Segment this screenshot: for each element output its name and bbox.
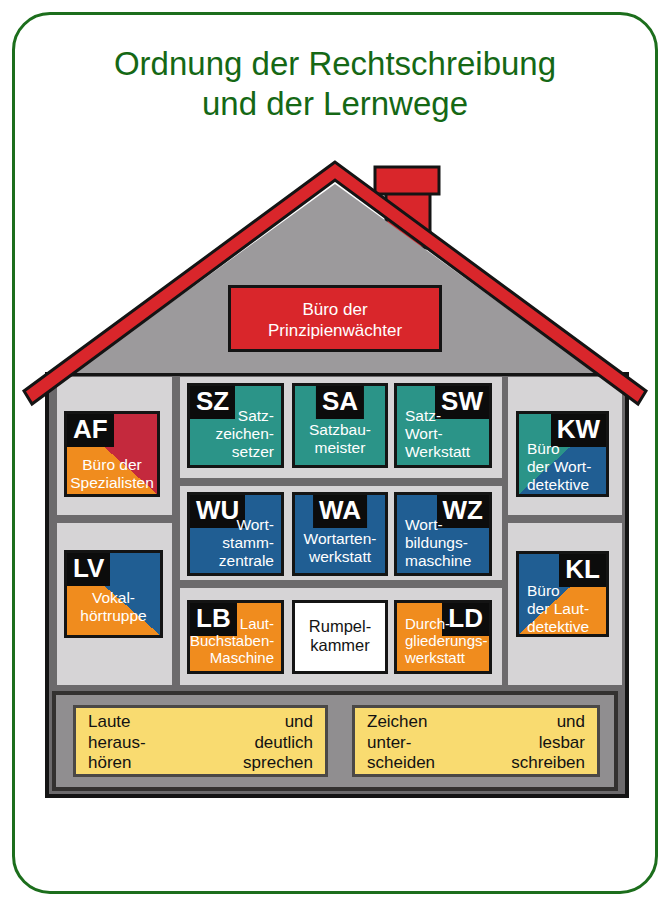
- room-lb: LB Laut- Buchstaben- Maschine: [187, 600, 284, 674]
- room-wz-label: Wort- bildungs- maschine: [397, 516, 489, 570]
- room-lb-label: Laut- Buchstaben- Maschine: [190, 616, 281, 667]
- room-lv-code-badge: LV: [67, 553, 110, 586]
- room-lv-label: Vokal- hörtruppe: [67, 589, 160, 625]
- room-sw-label: Satz- Wort- Werkstatt: [397, 407, 489, 461]
- room-sz-label: Satz- zeichen- setzer: [190, 407, 281, 461]
- room-kl: KL Büro der Laut- detektive: [516, 551, 609, 637]
- room-wu-label: Wort- stamm- zentrale: [190, 516, 281, 570]
- room-af: AF Büro der Spezialisten: [64, 411, 160, 497]
- room-kl-label: Büro der Laut- detektive: [519, 582, 606, 636]
- room-kw: KW Büro der Wort- detektive: [516, 411, 609, 497]
- room-sa-label: Satzbau- meister: [295, 421, 385, 457]
- chimney-cap: [375, 167, 439, 194]
- room-lv: LV Vokal- hörtruppe: [64, 550, 163, 638]
- room-rumpelkammer: Rumpel- kammer: [292, 600, 388, 674]
- room-wa-label: Wortarten- werkstatt: [295, 530, 385, 566]
- room-ld-label: Durch- gliederungs- werkstatt: [397, 616, 489, 667]
- room-wa-code-badge: WA: [313, 495, 367, 528]
- room-sw: SW Satz- Wort- Werkstatt: [394, 383, 492, 468]
- room-prinzipienwaechter: Büro der Prinzipienwächter: [228, 285, 442, 352]
- room-sa-code-badge: SA: [316, 386, 364, 419]
- room-sa: SA Satzbau- meister: [292, 383, 388, 468]
- room-rumpelkammer-label: Rumpel- kammer: [295, 617, 385, 655]
- room-af-label: Büro der Spezialisten: [67, 456, 157, 492]
- poster: Ordnung der Rechtschreibung und der Lern…: [0, 0, 670, 910]
- room-wa: WA Wortarten- werkstatt: [292, 492, 388, 576]
- room-wz: WZ Wort- bildungs- maschine: [394, 492, 492, 576]
- room-ld: LD Durch- gliederungs- werkstatt: [394, 600, 492, 674]
- room-sz: SZ Satz- zeichen- setzer: [187, 383, 284, 468]
- room-af-code-badge: AF: [67, 414, 114, 447]
- room-wu: WU Wort- stamm- zentrale: [187, 492, 284, 576]
- room-kw-label: Büro der Wort- detektive: [519, 440, 606, 494]
